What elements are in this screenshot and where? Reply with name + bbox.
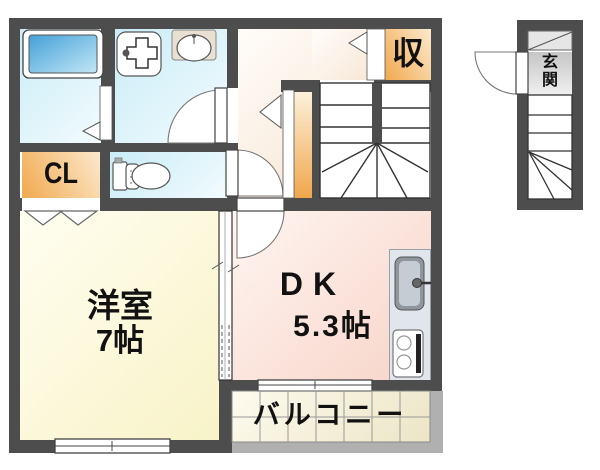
bathtub-icon [23, 30, 103, 78]
floor-plan: CL 収 洋室 7帖 DK 5.3帖 バルコニー 玄 関 [0, 0, 600, 470]
label-storage: 収 [385, 37, 431, 71]
washing-machine-icon [117, 32, 161, 76]
label-entrance: 玄 関 [528, 54, 572, 91]
label-entrance-char-top: 玄 [528, 54, 572, 72]
label-western-size: 7帖 [30, 325, 210, 358]
dk-window [258, 380, 372, 391]
sink-icon [172, 30, 216, 61]
entrance-door [475, 52, 528, 94]
dk-door [237, 198, 284, 258]
partition-sliding-door [212, 211, 239, 380]
stairs-entrance [528, 95, 572, 199]
toilet-icon [113, 158, 170, 190]
kitchen-sink-icon [395, 257, 431, 310]
label-entrance-char-bottom: 関 [528, 72, 572, 90]
label-western-room: 洋室 [30, 289, 210, 324]
bathroom-door [83, 86, 112, 140]
stairs-center-wall [372, 83, 382, 143]
washroom-door [168, 88, 238, 143]
storage-sliding-door [349, 29, 385, 80]
label-closet: CL [31, 158, 91, 190]
toilet-door [226, 150, 283, 196]
label-balcony: バルコニー [230, 401, 430, 429]
label-dk: DK [243, 268, 383, 302]
western-room-window [55, 439, 170, 453]
cl-folding-door [22, 198, 100, 225]
entrance-upper-slab [528, 31, 572, 50]
label-dk-size: 5.3帖 [243, 311, 423, 343]
